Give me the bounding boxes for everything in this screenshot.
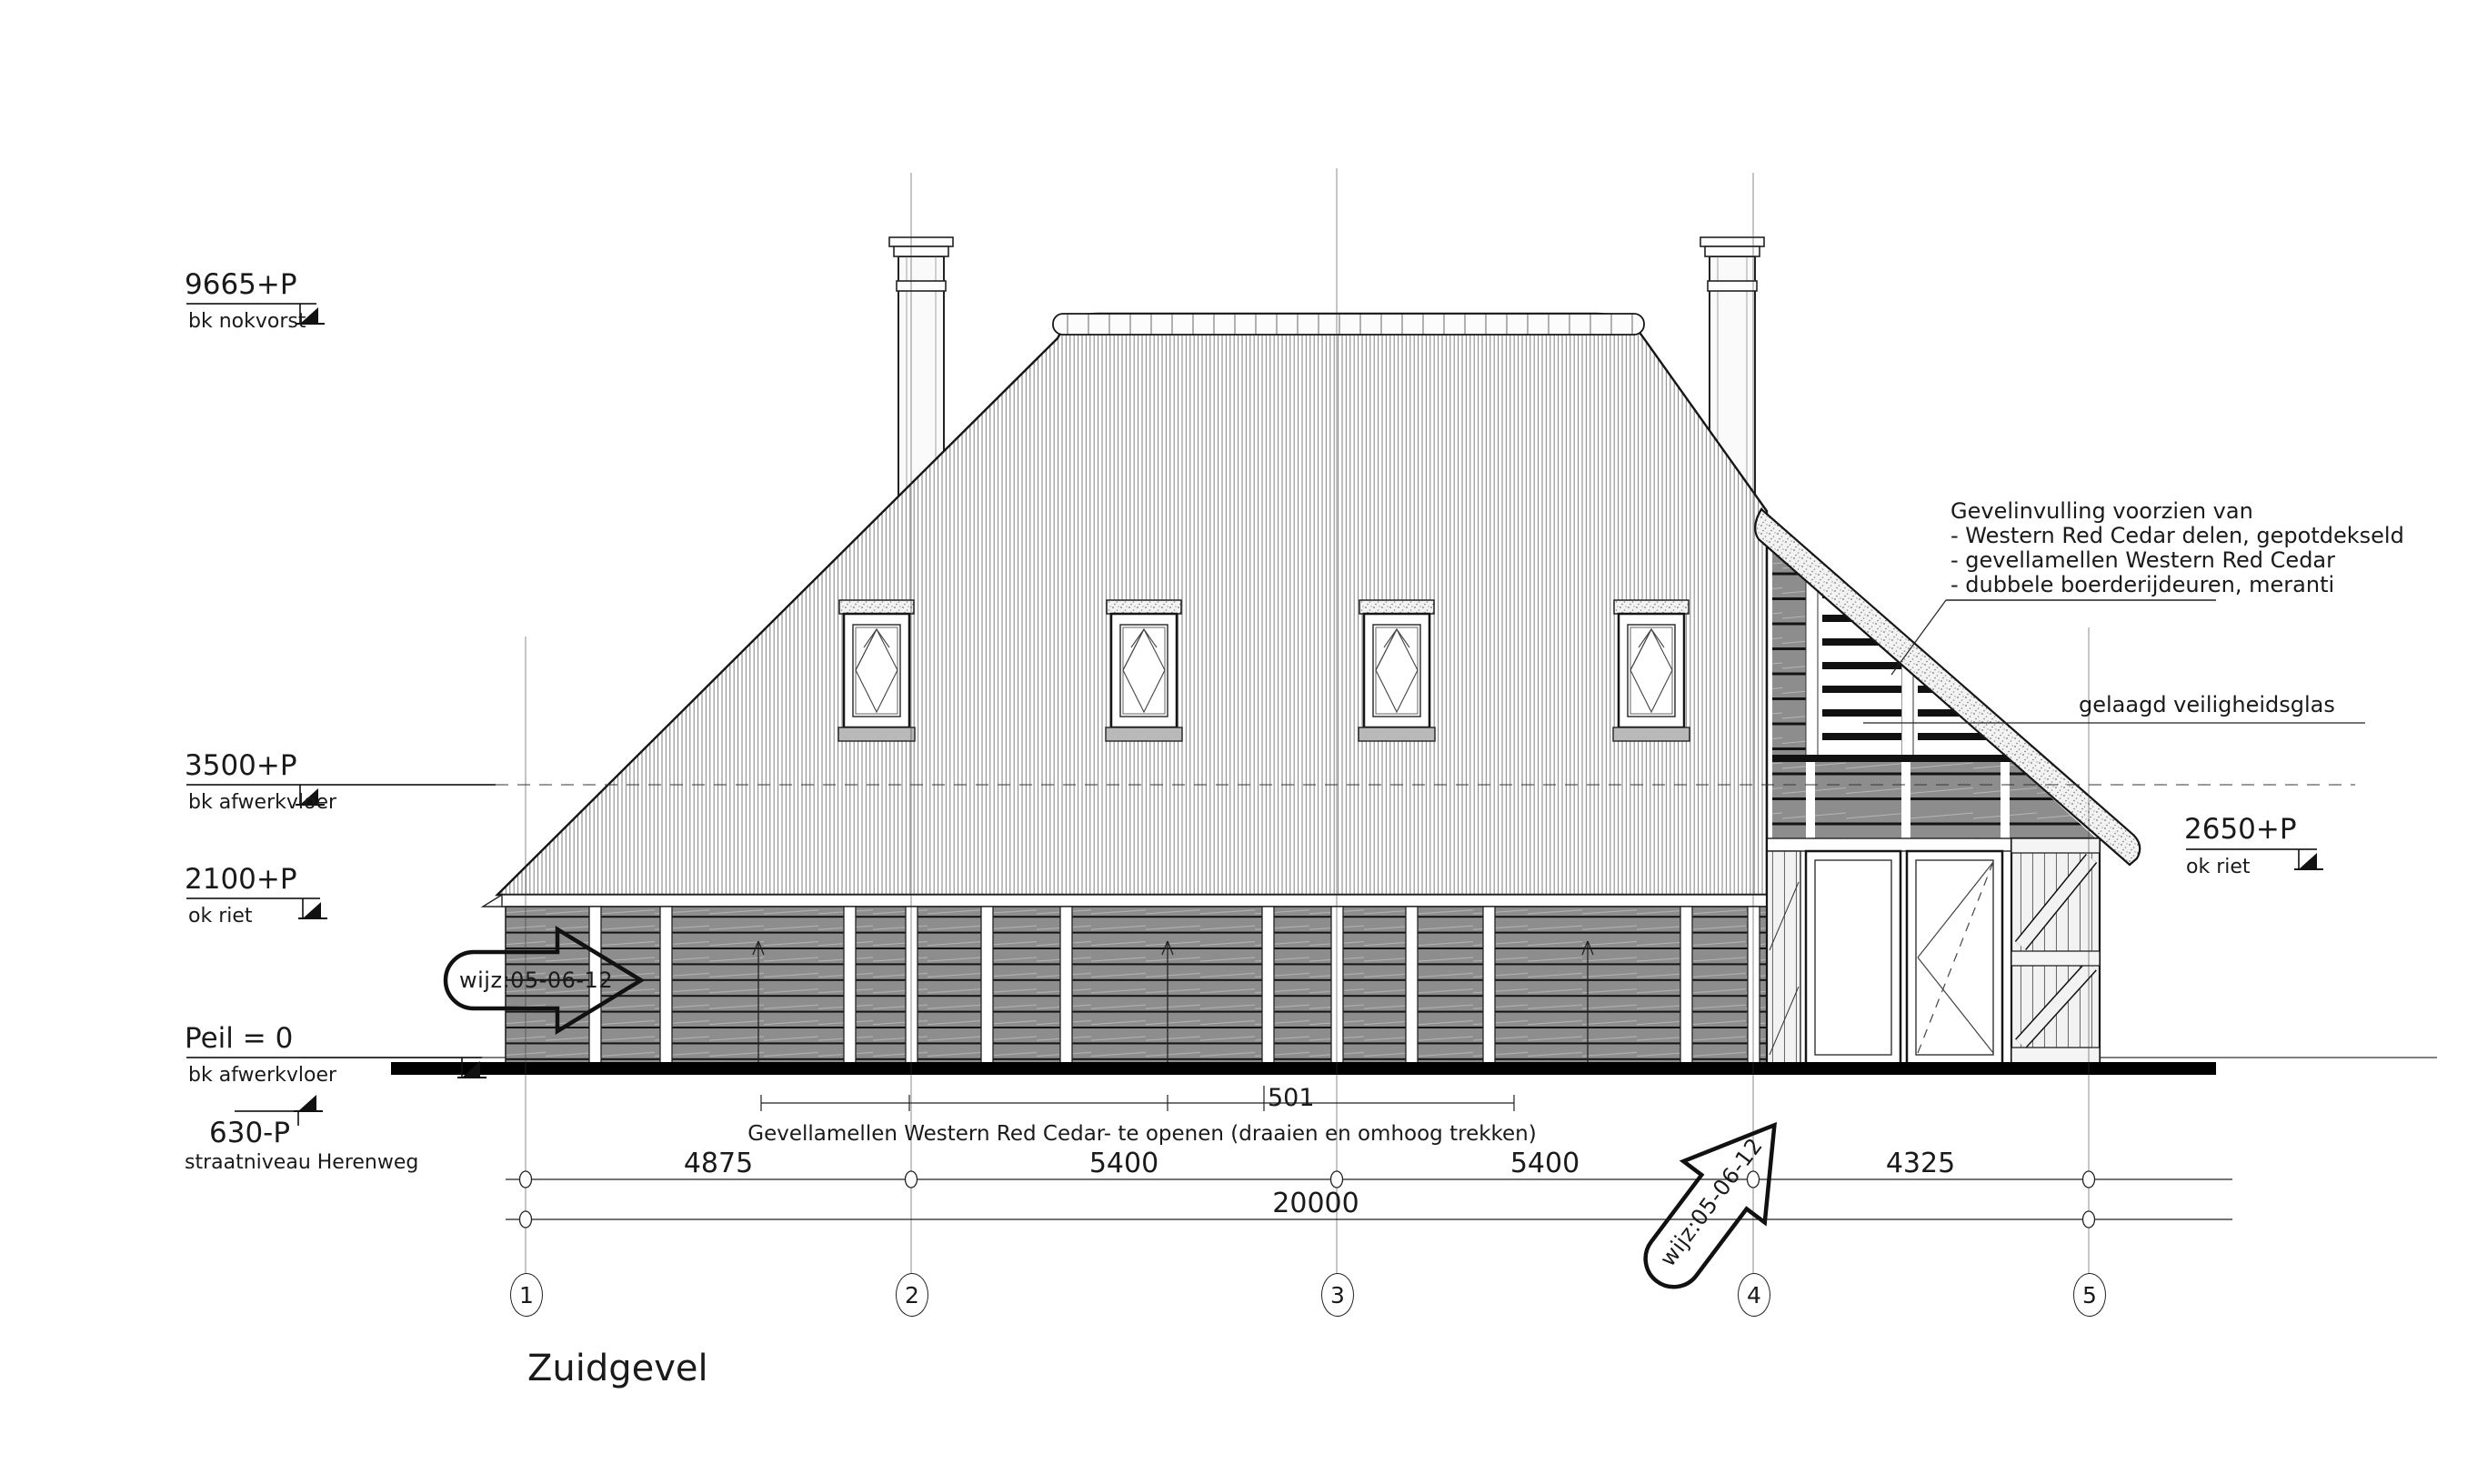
level-2650-value: 2650+P (2184, 813, 2297, 846)
level-nok-label: bk nokvorst (188, 310, 306, 333)
labels-layer: 9665+P bk nokvorst 3500+P bk afwerkvloer… (0, 0, 2477, 1484)
level-2650-label: ok riet (2186, 856, 2251, 878)
gevelinvulling-note-line1: Gevelinvulling voorzien van (1951, 499, 2253, 524)
level-peil-value: Peil = 0 (185, 1022, 293, 1055)
dim-segment-4: 4325 (1886, 1148, 1955, 1179)
dim-segment-1: 4875 (684, 1148, 753, 1179)
level-nok-value: 9665+P (185, 268, 297, 301)
revision-tag-right: wijz:05-06-12 (1647, 1122, 1777, 1283)
lamellen-note: Gevellamellen Western Red Cedar- te open… (747, 1122, 1536, 1146)
revision-tag-left: wijz:05-06-12 (459, 968, 613, 993)
level-2100-label: ok riet (188, 905, 253, 927)
grid-bubble-5: 5 (2073, 1273, 2106, 1317)
grid-bubble-3: 3 (1321, 1273, 1354, 1317)
dim-segment-2: 5400 (1089, 1148, 1158, 1179)
lamellen-ref-number: 501 (1268, 1084, 1315, 1112)
grid-bubble-2: 2 (896, 1273, 928, 1317)
level-street-label: straatniveau Herenweg (185, 1151, 418, 1174)
level-2100-value: 2100+P (185, 863, 297, 896)
dim-total: 20000 (1272, 1188, 1359, 1219)
level-street-value: 630-P (209, 1117, 290, 1149)
grid-bubble-4: 4 (1738, 1273, 1770, 1317)
level-peil-label: bk afwerkvloer (188, 1064, 336, 1087)
gevelinvulling-note-line3: - gevellamellen Western Red Cedar (1951, 548, 2335, 573)
dim-segment-3: 5400 (1510, 1148, 1579, 1179)
grid-bubble-1: 1 (510, 1273, 543, 1317)
gevelinvulling-note-line4: - dubbele boerderijdeuren, meranti (1951, 573, 2334, 597)
glass-note: gelaagd veiligheidsglas (2079, 693, 2335, 717)
drawing-title: Zuidgevel (527, 1348, 708, 1389)
level-3500-label: bk afwerkvloer (188, 791, 336, 814)
gevelinvulling-note-line2: - Western Red Cedar delen, gepotdekseld (1951, 524, 2404, 548)
elevation-drawing-sheet: 9665+P bk nokvorst 3500+P bk afwerkvloer… (0, 0, 2477, 1484)
level-3500-value: 3500+P (185, 749, 297, 782)
